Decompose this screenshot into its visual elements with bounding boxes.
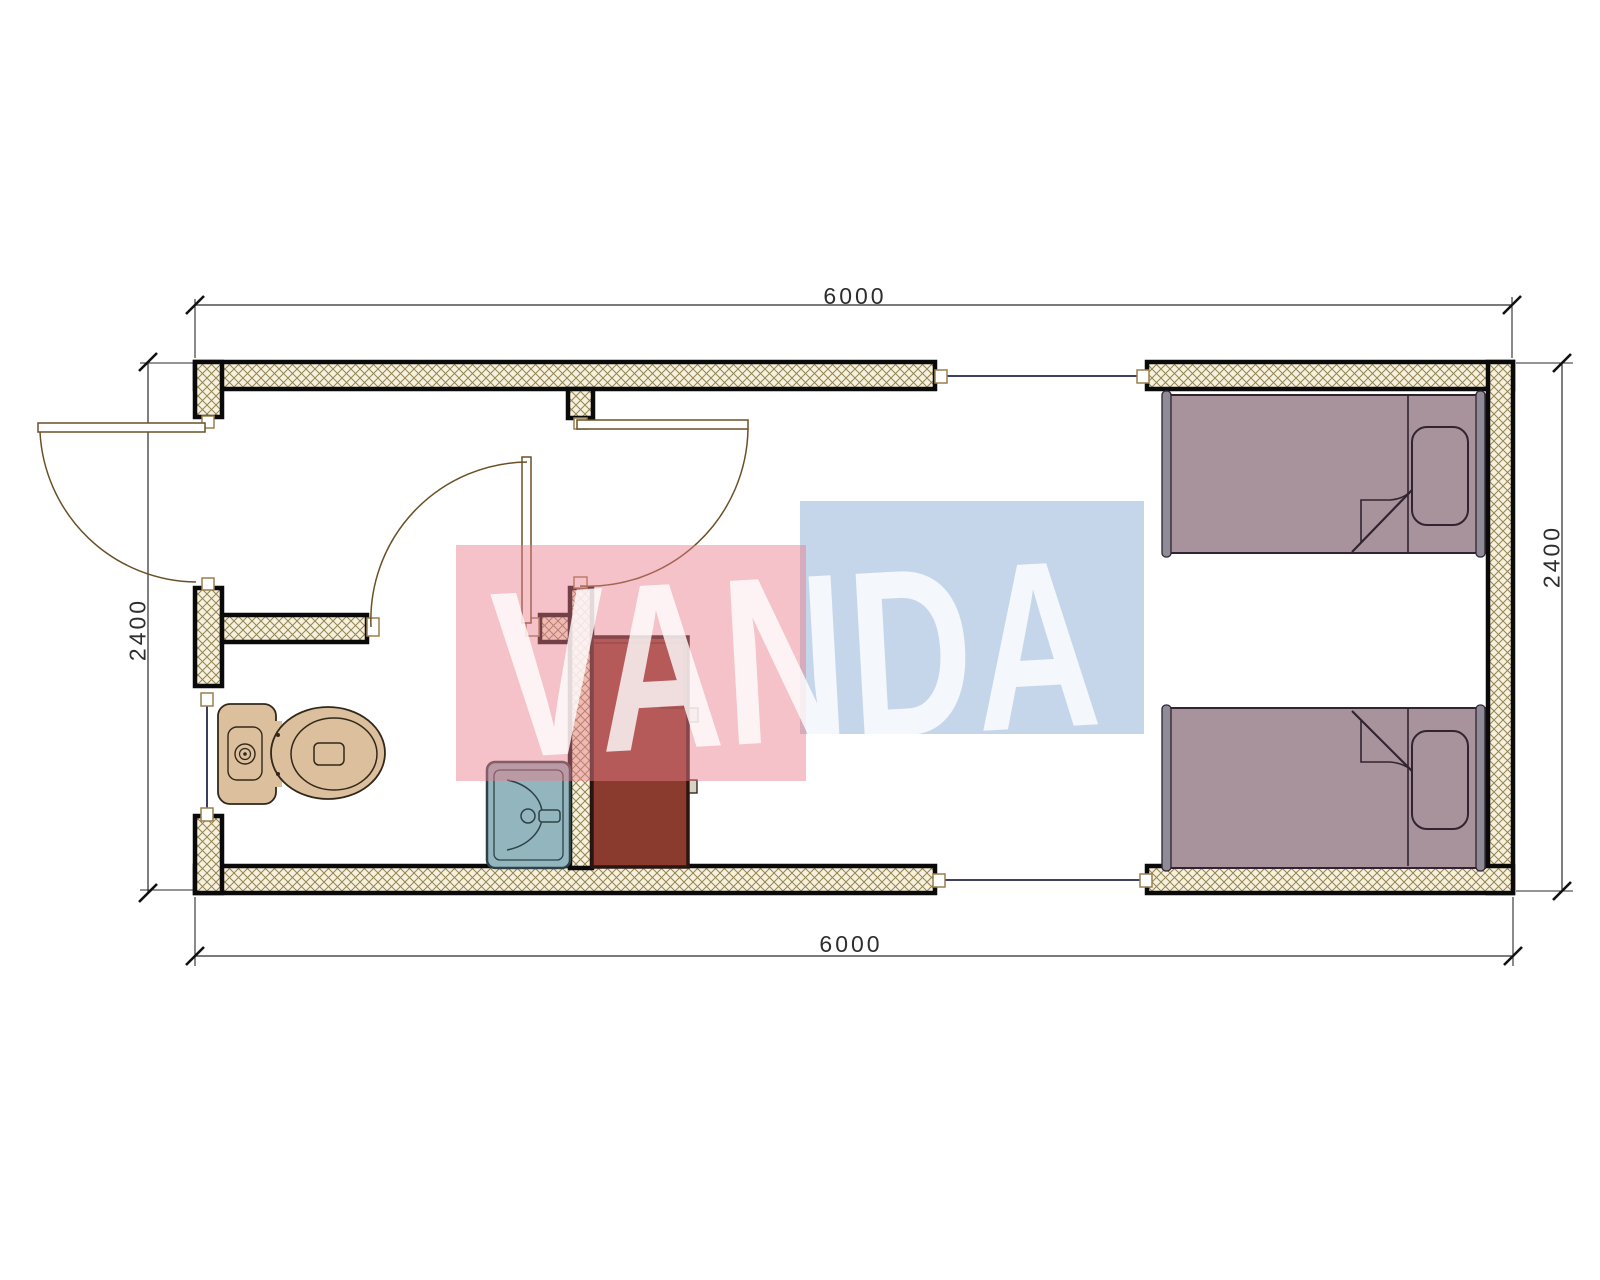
right-wall bbox=[1488, 362, 1513, 893]
entry-door bbox=[38, 423, 205, 582]
pillow bbox=[1412, 731, 1468, 829]
dimension-label-right: 2400 bbox=[1539, 507, 1566, 607]
watermark-text: VANDA bbox=[542, 522, 1052, 797]
dimension-label-left: 2400 bbox=[125, 580, 152, 680]
floor-plan-canvas: VANDA 6000 6000 2400 2400 bbox=[0, 0, 1600, 1280]
left-wall-pier-top bbox=[195, 362, 222, 417]
dimension-label-top: 6000 bbox=[805, 283, 905, 310]
stub-wall bbox=[222, 615, 367, 642]
door-pier bbox=[568, 389, 593, 418]
top-wall-right bbox=[1147, 362, 1513, 389]
left-wall-pier-bottom bbox=[195, 816, 222, 893]
bottom-wall-right bbox=[1147, 866, 1513, 893]
pillow bbox=[1412, 427, 1468, 525]
toilet-fixture bbox=[218, 704, 385, 804]
bottom-wall-left bbox=[195, 866, 935, 893]
left-wall-pier-mid bbox=[195, 588, 222, 686]
dimension-label-bottom: 6000 bbox=[801, 931, 901, 958]
bed-top bbox=[1162, 391, 1485, 557]
bed-bottom bbox=[1162, 705, 1485, 871]
top-wall-left bbox=[195, 362, 935, 389]
